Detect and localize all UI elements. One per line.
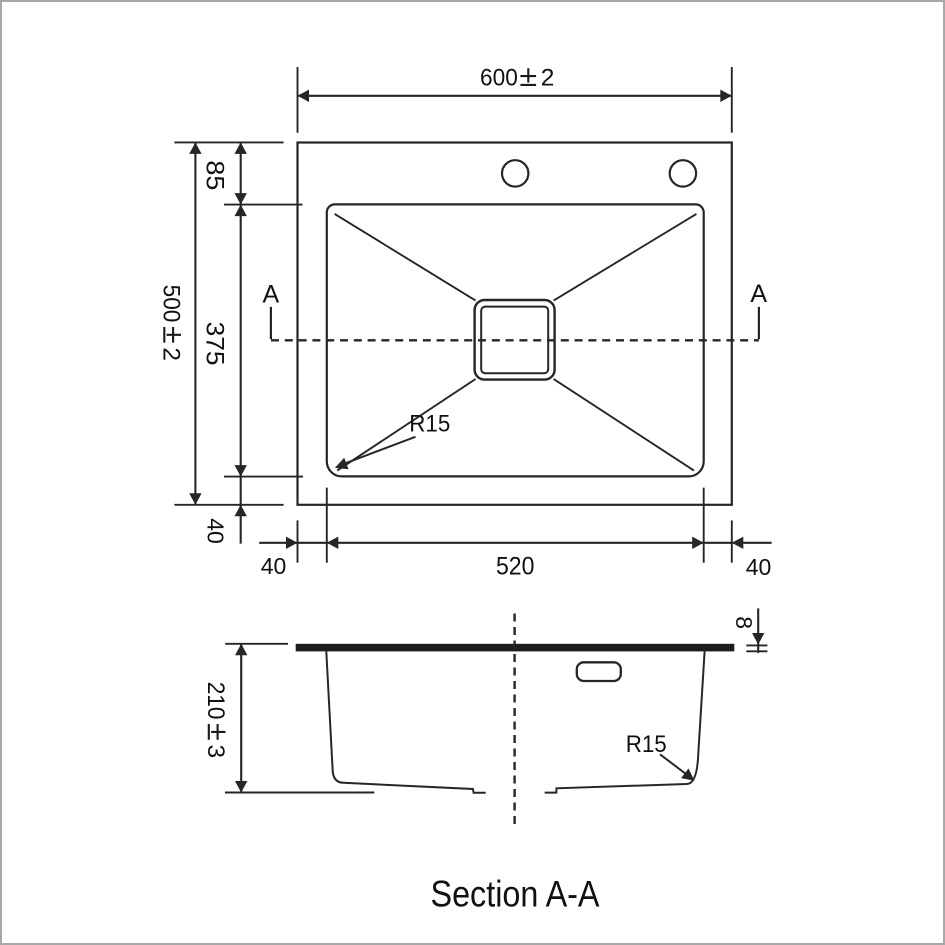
svg-text:A: A [750,280,767,308]
svg-text:85: 85 [201,160,229,190]
svg-text:8: 8 [731,616,757,629]
svg-text:R15: R15 [409,411,450,438]
svg-text:Section A-A: Section A-A [431,874,601,915]
svg-text:375: 375 [201,322,229,366]
svg-text:3: 3 [202,745,229,759]
svg-text:500: 500 [158,285,185,323]
svg-text:A: A [263,281,280,309]
svg-text:210: 210 [202,682,229,720]
svg-text:40: 40 [261,553,287,579]
svg-text:R15: R15 [626,731,667,758]
svg-text:2: 2 [158,347,185,361]
svg-text:40: 40 [203,518,229,544]
svg-text:40: 40 [746,554,772,580]
svg-text:2: 2 [541,65,555,92]
svg-text:600: 600 [480,65,518,92]
svg-text:520: 520 [496,553,535,581]
